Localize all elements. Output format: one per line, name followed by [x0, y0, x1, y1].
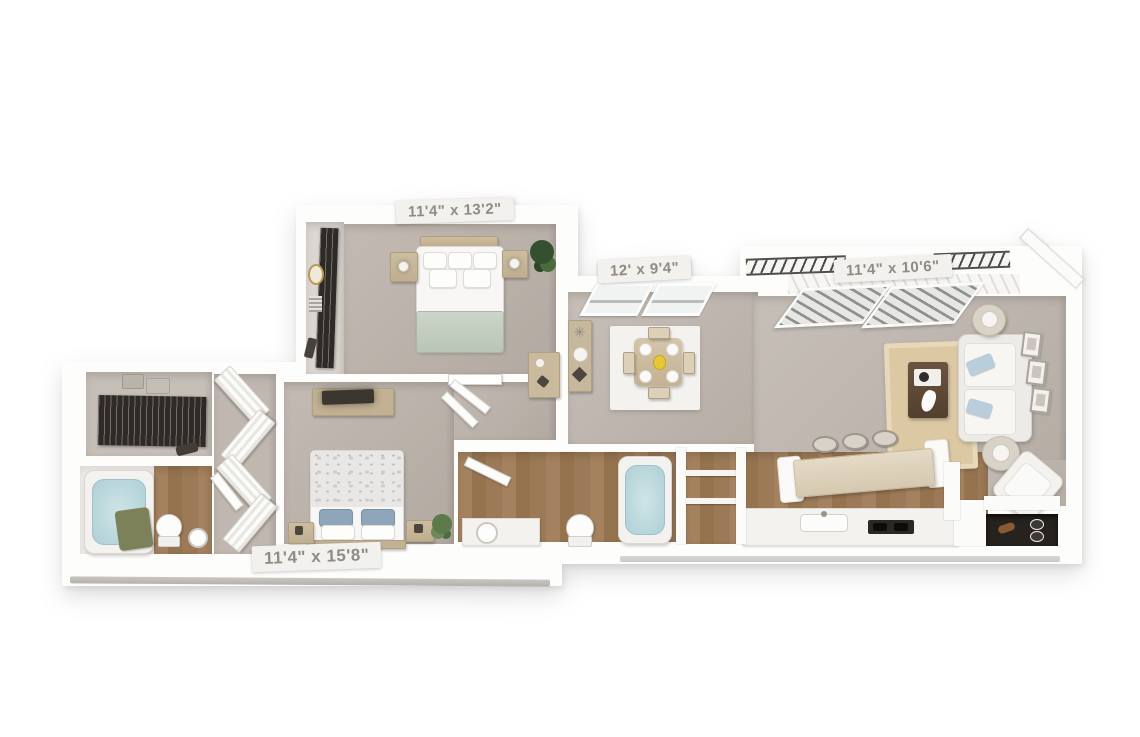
lamp-bottom: [992, 444, 1010, 462]
pillow: [463, 269, 491, 288]
linen-shelf: [686, 498, 736, 504]
dining-chair-right: [683, 352, 695, 374]
corner-plant: [530, 240, 554, 264]
dining-chair-bottom: [648, 387, 670, 399]
dining-table: [634, 338, 682, 386]
toilet-tank: [568, 536, 592, 547]
pillow: [473, 252, 497, 269]
label-dining: 12' x 9'4": [597, 256, 691, 284]
cooktop: [868, 520, 914, 534]
sage-throw-blanket: [416, 311, 504, 353]
lamp: [509, 258, 520, 269]
white-pillow: [321, 525, 355, 540]
burner-pair-right: [894, 523, 908, 531]
nightstand-item: [295, 526, 303, 535]
ensuite-bathtub: [84, 470, 154, 554]
pantry-top-wall: [984, 496, 1060, 510]
dining-chair-left: [623, 352, 635, 374]
storage-box: [122, 374, 144, 389]
white-pillow: [361, 525, 395, 540]
pillow: [423, 252, 447, 269]
nightstand-item: [414, 524, 423, 533]
label-bedroom-top: 11'4" x 13'2": [396, 197, 514, 224]
window-mullion: [651, 300, 705, 303]
place-setting: [639, 343, 652, 356]
vanity-sink: [476, 522, 498, 544]
wall-frame-1: [1021, 331, 1043, 358]
coffee-table: [908, 362, 948, 418]
balcony-railing-left: [746, 255, 847, 275]
lamp: [398, 261, 409, 272]
bathtub-water: [625, 465, 665, 535]
place-setting: [666, 343, 679, 356]
starburst-decor-icon: ✳: [572, 325, 587, 340]
olive-towel: [114, 507, 153, 551]
window-mullion: [589, 300, 643, 303]
place-setting: [639, 370, 652, 383]
jar-item: [1030, 519, 1044, 530]
yellow-centerpiece: [653, 355, 666, 370]
burner-pair-left: [873, 523, 887, 531]
hall-bathtub: [618, 456, 672, 544]
storage-box: [146, 378, 170, 394]
walk-in-clothes-rail: [98, 395, 207, 447]
frame-art: [1035, 394, 1045, 407]
frame-art: [1026, 338, 1036, 351]
mirror: [308, 264, 324, 285]
white-pitcher: [919, 389, 938, 414]
cabinet-decor: [536, 359, 544, 367]
linen-shelf: [686, 470, 736, 476]
label-bedroom-bottom: 11'4" x 15'8": [252, 542, 382, 573]
bed-top-bedroom: [416, 246, 504, 352]
pillow: [448, 252, 472, 269]
floor-plan-image: 11'4" x 13'2" 12' x 9'4" 11'4" x 10'6" 1…: [0, 0, 1140, 737]
console-table: ✳: [568, 320, 592, 392]
faucet: [821, 511, 827, 517]
pantry-nook-shelf: [986, 514, 1058, 546]
frame-art: [1031, 366, 1041, 379]
dining-chair-top: [648, 327, 670, 339]
pillow: [429, 269, 457, 288]
shelf-basket: [309, 296, 322, 312]
wall-frame-2: [1026, 359, 1048, 386]
bread-item: [997, 522, 1016, 535]
place-setting: [666, 370, 679, 383]
kitchen-counter: [742, 508, 958, 546]
ensuite-toilet-tank: [158, 536, 180, 547]
diamond-decor: [572, 367, 588, 383]
jar-item: [1030, 531, 1044, 542]
bar-stool-1: [812, 436, 838, 453]
dark-bowl: [919, 372, 929, 382]
wall-frame-3: [1030, 387, 1052, 414]
bedroom-plant: [432, 514, 452, 534]
cabinet-decor-dark: [536, 375, 549, 388]
vanity-counter: [462, 518, 540, 546]
kitchen-wall-stub-2: [944, 462, 960, 520]
kitchen-sink: [800, 514, 848, 532]
bar-stool-2: [842, 433, 868, 450]
hall-cabinet: [528, 352, 560, 398]
lamp-top: [981, 311, 998, 328]
ensuite-sink: [188, 528, 208, 548]
tv: [322, 389, 374, 405]
bed-bottom-bedroom: [310, 450, 404, 546]
floral-duvet: [311, 451, 403, 507]
round-plate-decor: [573, 347, 588, 362]
bar-stool-3: [872, 430, 898, 447]
base-shadow-edge-right: [620, 556, 1060, 562]
linen-closet-wall-left: [676, 448, 686, 544]
linen-closet-wall-right: [736, 448, 746, 544]
